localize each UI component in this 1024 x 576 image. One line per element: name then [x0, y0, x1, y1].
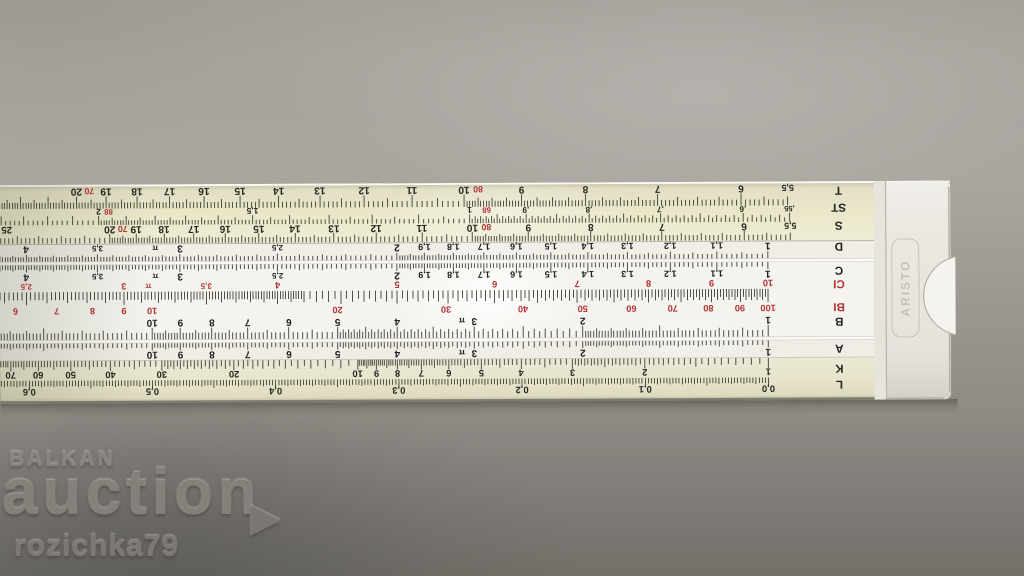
svg-text:40: 40 [105, 370, 115, 381]
svg-text:3: 3 [121, 281, 126, 291]
svg-text:T: T [835, 184, 842, 197]
svg-text:1,9: 1,9 [418, 270, 431, 280]
svg-text:3: 3 [177, 270, 183, 281]
svg-text:0,6: 0,6 [23, 387, 36, 398]
svg-text:5: 5 [334, 348, 340, 359]
svg-text:10: 10 [352, 368, 362, 379]
svg-text:2,5: 2,5 [271, 243, 283, 252]
svg-text:7: 7 [54, 306, 59, 316]
svg-text:50: 50 [65, 370, 75, 381]
svg-text:6: 6 [13, 306, 18, 316]
svg-text:20: 20 [104, 223, 116, 234]
svg-text:30: 30 [157, 369, 167, 380]
svg-text:7: 7 [244, 348, 250, 359]
svg-text:K: K [835, 362, 844, 375]
svg-text:,6: ,6 [739, 204, 746, 213]
svg-text:2: 2 [579, 315, 585, 326]
svg-text:9: 9 [177, 317, 183, 328]
svg-text:5,5: 5,5 [781, 183, 793, 193]
svg-text:A: A [834, 342, 843, 355]
svg-text:19: 19 [100, 186, 112, 197]
svg-text:rozichka79: rozichka79 [14, 530, 179, 563]
svg-text:1,8: 1,8 [447, 270, 460, 280]
svg-text:3: 3 [471, 347, 477, 358]
svg-text:17: 17 [188, 223, 200, 234]
svg-text:CI: CI [833, 277, 845, 290]
svg-text:5,5: 5,5 [784, 221, 796, 231]
svg-text:π: π [152, 272, 158, 281]
svg-text:10: 10 [763, 278, 773, 289]
svg-text:8: 8 [395, 368, 400, 379]
svg-text:6: 6 [492, 279, 497, 290]
svg-text:13: 13 [314, 185, 326, 196]
svg-text:0,4: 0,4 [268, 386, 282, 397]
svg-text:11: 11 [416, 222, 427, 233]
svg-text:20: 20 [229, 369, 239, 380]
svg-text:14: 14 [289, 223, 301, 234]
svg-text:2,5: 2,5 [271, 271, 283, 280]
svg-text:3,5: 3,5 [200, 281, 212, 290]
svg-text:70: 70 [118, 224, 128, 234]
svg-text:1,2: 1,2 [664, 269, 677, 279]
svg-text:4: 4 [394, 316, 400, 327]
svg-text:20: 20 [332, 305, 342, 315]
svg-text:0,0: 0,0 [762, 383, 775, 394]
svg-text:2: 2 [96, 207, 101, 217]
svg-text:9: 9 [374, 368, 379, 379]
svg-text:2: 2 [580, 347, 586, 358]
svg-text:25: 25 [1, 224, 12, 235]
svg-text:1: 1 [766, 367, 771, 378]
svg-text:2: 2 [394, 241, 400, 252]
svg-text:12: 12 [358, 184, 370, 195]
svg-text:10: 10 [466, 222, 478, 233]
svg-text:88: 88 [104, 207, 113, 216]
svg-text:1: 1 [467, 205, 472, 215]
svg-text:1,1: 1,1 [711, 240, 724, 250]
svg-text:20: 20 [70, 186, 82, 197]
svg-text:1: 1 [765, 268, 771, 279]
svg-text:0,5: 0,5 [146, 386, 159, 397]
svg-text:,7: ,7 [657, 205, 664, 214]
svg-text:BI: BI [833, 300, 845, 313]
svg-text:30: 30 [441, 304, 451, 314]
svg-text:6: 6 [738, 183, 744, 194]
svg-text:3,5: 3,5 [91, 272, 103, 281]
svg-text:S: S [835, 219, 843, 232]
svg-text:2: 2 [394, 269, 400, 280]
svg-text:7: 7 [419, 368, 424, 379]
svg-text:9: 9 [121, 306, 126, 316]
svg-text:4: 4 [23, 243, 29, 254]
svg-text:1: 1 [765, 314, 771, 325]
svg-text:C: C [834, 264, 843, 277]
svg-text:19: 19 [130, 223, 142, 234]
svg-text:90: 90 [735, 303, 745, 313]
svg-text:7: 7 [659, 221, 665, 232]
svg-text:7: 7 [575, 279, 580, 290]
svg-text:L: L [836, 378, 843, 391]
svg-text:1,5: 1,5 [545, 241, 558, 251]
svg-text:π: π [458, 316, 465, 326]
svg-text:70: 70 [84, 186, 94, 196]
svg-text:10: 10 [458, 184, 470, 195]
svg-text:B: B [835, 315, 843, 328]
svg-text:9: 9 [518, 184, 524, 195]
svg-text:auction: auction [2, 456, 261, 528]
svg-text:68: 68 [482, 205, 491, 214]
svg-text:10: 10 [146, 349, 158, 360]
svg-text:1,4: 1,4 [582, 241, 595, 251]
svg-text:6: 6 [286, 348, 292, 359]
svg-text:3,5: 3,5 [91, 244, 103, 253]
svg-text:100: 100 [760, 303, 775, 313]
svg-text:18: 18 [131, 185, 143, 196]
svg-text:1,4: 1,4 [582, 269, 595, 279]
svg-text:50: 50 [578, 304, 588, 314]
svg-text:1,3: 1,3 [621, 269, 634, 279]
svg-text:15: 15 [234, 185, 246, 196]
svg-text:10: 10 [146, 317, 158, 328]
svg-text:0,2: 0,2 [516, 385, 529, 396]
svg-text:7: 7 [244, 316, 250, 327]
svg-text:1: 1 [765, 240, 771, 251]
svg-text:π: π [145, 282, 151, 291]
svg-text:8: 8 [90, 306, 95, 316]
svg-text:1,5: 1,5 [545, 269, 558, 279]
svg-text:80: 80 [473, 184, 483, 194]
svg-text:60: 60 [626, 303, 636, 313]
svg-text:1,7: 1,7 [478, 270, 491, 280]
svg-text:6: 6 [286, 316, 292, 327]
svg-text:9: 9 [177, 349, 183, 360]
svg-text:3: 3 [471, 315, 477, 326]
svg-text:8: 8 [582, 183, 588, 194]
svg-text:10: 10 [147, 306, 157, 316]
svg-text:4: 4 [518, 368, 524, 379]
svg-text:ST: ST [831, 201, 846, 214]
svg-text:16: 16 [198, 185, 210, 196]
svg-text:3: 3 [570, 367, 575, 378]
svg-text:70: 70 [668, 303, 678, 313]
svg-text:8: 8 [209, 349, 215, 360]
svg-text:80: 80 [703, 303, 713, 313]
svg-text:11: 11 [406, 184, 417, 195]
svg-text:4: 4 [23, 271, 29, 282]
svg-text:40: 40 [518, 304, 528, 314]
svg-text:13: 13 [328, 222, 340, 233]
svg-text:3: 3 [177, 242, 183, 253]
svg-text:0,1: 0,1 [639, 384, 652, 395]
svg-text:0,3: 0,3 [392, 385, 405, 396]
svg-text:16: 16 [219, 223, 231, 234]
svg-text:,8: ,8 [585, 205, 592, 214]
svg-text:1,3: 1,3 [621, 241, 634, 251]
svg-text:9: 9 [709, 278, 714, 289]
svg-text:π: π [152, 244, 158, 253]
svg-text:70: 70 [5, 370, 15, 381]
svg-text:1: 1 [765, 346, 771, 357]
svg-text:D: D [835, 240, 843, 253]
svg-text:17: 17 [164, 185, 176, 196]
svg-text:1,5: 1,5 [246, 206, 258, 216]
svg-text:1,8: 1,8 [447, 242, 460, 252]
svg-text:8: 8 [588, 221, 594, 232]
svg-text:1,2: 1,2 [664, 241, 677, 251]
svg-text:7: 7 [655, 183, 661, 194]
svg-text:4: 4 [274, 280, 280, 291]
svg-text:12: 12 [370, 222, 382, 233]
svg-text:,55: ,55 [783, 204, 794, 213]
svg-text:,9: ,9 [522, 205, 529, 214]
svg-text:2: 2 [642, 367, 647, 378]
svg-text:80: 80 [481, 222, 491, 232]
svg-text:1,1: 1,1 [711, 268, 724, 278]
svg-text:2,5: 2,5 [20, 282, 32, 291]
svg-text:5: 5 [334, 316, 340, 327]
svg-text:14: 14 [273, 185, 285, 196]
svg-text:8: 8 [646, 278, 651, 289]
svg-text:1,6: 1,6 [510, 241, 523, 251]
svg-text:π: π [458, 348, 465, 358]
svg-text:1,9: 1,9 [418, 242, 431, 252]
svg-text:6: 6 [741, 220, 747, 231]
svg-text:1,7: 1,7 [478, 242, 491, 252]
svg-text:5: 5 [394, 279, 399, 290]
svg-text:8: 8 [209, 317, 215, 328]
svg-text:15: 15 [253, 223, 265, 234]
svg-text:60: 60 [33, 370, 43, 381]
svg-text:18: 18 [158, 223, 170, 234]
svg-text:6: 6 [446, 368, 451, 379]
svg-text:ARISTO: ARISTO [898, 259, 912, 316]
svg-text:9: 9 [525, 221, 531, 232]
svg-text:1,6: 1,6 [510, 269, 523, 279]
svg-text:4: 4 [394, 348, 400, 359]
svg-text:5: 5 [479, 368, 484, 379]
